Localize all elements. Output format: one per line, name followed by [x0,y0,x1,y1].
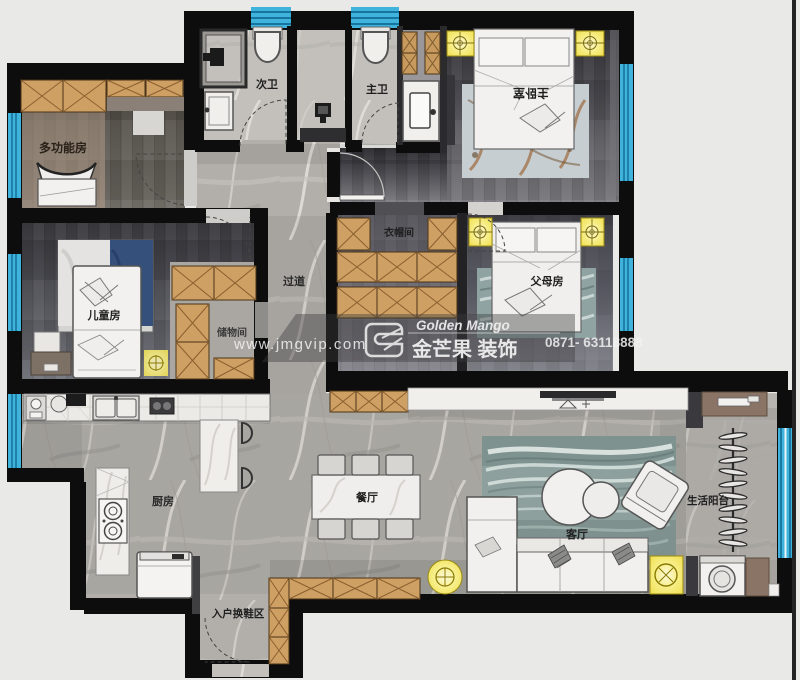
svg-text:父母房: 父母房 [530,274,564,288]
svg-text:主卫: 主卫 [366,82,388,96]
svg-text:过道: 过道 [283,274,305,288]
svg-text:主卧室: 主卧室 [513,86,549,101]
svg-text:入户换鞋区: 入户换鞋区 [212,607,265,620]
svg-text:客厅: 客厅 [565,527,588,541]
svg-text:www.jmgvip.com: www.jmgvip.com [233,336,367,353]
svg-text:生活阳台: 生活阳台 [687,494,729,507]
svg-text:衣帽间: 衣帽间 [384,226,414,239]
svg-text:儿童房: 儿童房 [87,308,121,322]
svg-text:厨房: 厨房 [152,494,174,508]
svg-text:Golden Mango: Golden Mango [416,318,510,333]
svg-text:多功能房: 多功能房 [39,140,87,155]
svg-text:次卫: 次卫 [256,77,278,91]
svg-text:0871- 63118888: 0871- 63118888 [545,335,643,350]
svg-text:餐厅: 餐厅 [355,490,378,504]
svg-text:金芒果 装饰: 金芒果 装饰 [411,337,518,361]
